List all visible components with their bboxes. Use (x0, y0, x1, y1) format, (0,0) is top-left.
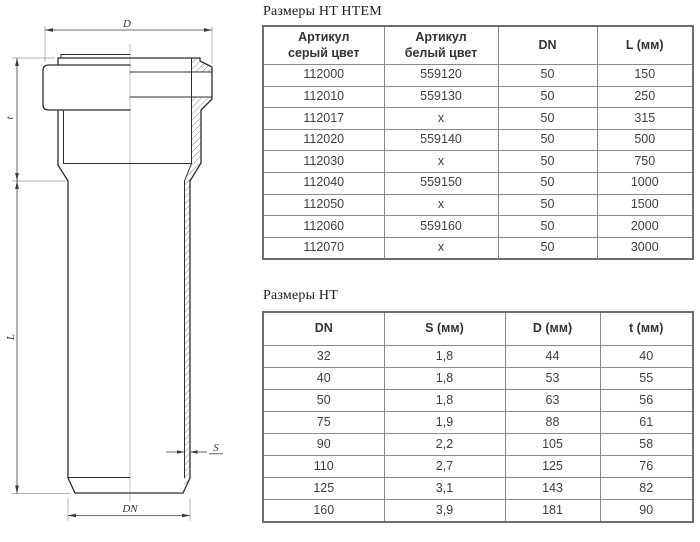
table-row: 11202055914050500 (263, 129, 693, 151)
table-cell: 1500 (597, 194, 693, 216)
table-cell: 181 (505, 500, 600, 523)
column-header: DN (498, 26, 597, 65)
table-cell: 88 (505, 412, 600, 434)
table-cell: 2000 (597, 216, 693, 238)
ht-table-title: Размеры HT (263, 288, 338, 304)
table-cell: 315 (597, 108, 693, 130)
table-row: 501,86356 (263, 390, 693, 412)
table-row: 112017x50315 (263, 108, 693, 130)
table-cell: 3,9 (384, 500, 505, 523)
column-header: Артикул белый цвет (384, 26, 498, 65)
table-cell: 160 (263, 500, 384, 523)
table-cell: 750 (597, 151, 693, 173)
table-cell: 559120 (384, 65, 498, 87)
dim-label-l: L (5, 334, 17, 341)
table-cell: 559160 (384, 216, 498, 238)
table-cell: 75 (263, 412, 384, 434)
table-cell: 1,8 (384, 346, 505, 368)
table-row: 321,84440 (263, 346, 693, 368)
table-cell: 1,8 (384, 368, 505, 390)
table-cell: 2,2 (384, 434, 505, 456)
table-cell: 125 (505, 456, 600, 478)
table-cell: 40 (600, 346, 693, 368)
table-row: 11200055912050150 (263, 65, 693, 87)
table-cell: 3000 (597, 237, 693, 259)
header-row: Артикул серый цветАртикул белый цветDNL … (263, 26, 693, 65)
table-cell: 2,7 (384, 456, 505, 478)
table-row: 1253,114382 (263, 478, 693, 500)
table-cell: 56 (600, 390, 693, 412)
extension-lines (12, 26, 212, 521)
table-cell: 76 (600, 456, 693, 478)
pipe-technical-drawing: D t L S DN (0, 0, 260, 542)
table-row: 112050x501500 (263, 194, 693, 216)
table-cell: 50 (498, 65, 597, 87)
table-cell: 3,1 (384, 478, 505, 500)
table-row: 112040559150501000 (263, 172, 693, 194)
ht-size-table: DNS (мм)D (мм)t (мм) 321,84440401,853555… (262, 311, 694, 523)
dim-label-s: S (213, 442, 219, 454)
table-cell: x (384, 108, 498, 130)
table-cell: x (384, 151, 498, 173)
table-cell: 1000 (597, 172, 693, 194)
table-cell: 50 (498, 237, 597, 259)
table-cell: 58 (600, 434, 693, 456)
column-header: t (мм) (600, 312, 693, 346)
column-header: S (мм) (384, 312, 505, 346)
htem-table-header: Артикул серый цветАртикул белый цветDNL … (263, 26, 693, 65)
table-row: 112060559160502000 (263, 216, 693, 238)
column-header: L (мм) (597, 26, 693, 65)
table-cell: 50 (498, 194, 597, 216)
table-cell: 50 (498, 172, 597, 194)
table-cell: 143 (505, 478, 600, 500)
table-row: 1102,712576 (263, 456, 693, 478)
table-cell: 125 (263, 478, 384, 500)
table-cell: 559130 (384, 86, 498, 108)
table-cell: 112017 (263, 108, 384, 130)
table-cell: 250 (597, 86, 693, 108)
table-cell: 53 (505, 368, 600, 390)
table-cell: 112060 (263, 216, 384, 238)
table-row: 11201055913050250 (263, 86, 693, 108)
catalog-page: D t L S DN Размеры HT HTEM Артикул серый… (0, 0, 700, 542)
htem-table-title: Размеры HT HTEM (263, 4, 382, 20)
table-cell: 50 (498, 108, 597, 130)
table-cell: 50 (498, 129, 597, 151)
table-row: 112030x50750 (263, 151, 693, 173)
table-cell: 32 (263, 346, 384, 368)
table-cell: 40 (263, 368, 384, 390)
header-row: DNS (мм)D (мм)t (мм) (263, 312, 693, 346)
dim-label-dn: DN (121, 503, 138, 515)
table-cell: 44 (505, 346, 600, 368)
table-cell: 55 (600, 368, 693, 390)
ht-table-body: 321,84440401,85355501,86356751,98861902,… (263, 346, 693, 523)
table-cell: x (384, 194, 498, 216)
table-cell: x (384, 237, 498, 259)
table-cell: 112030 (263, 151, 384, 173)
table-cell: 82 (600, 478, 693, 500)
htem-table-body: 1120005591205015011201055913050250112017… (263, 65, 693, 260)
table-cell: 112070 (263, 237, 384, 259)
table-cell: 559140 (384, 129, 498, 151)
table-cell: 90 (263, 434, 384, 456)
table-cell: 112040 (263, 172, 384, 194)
table-row: 751,98861 (263, 412, 693, 434)
table-row: 1603,918190 (263, 500, 693, 523)
table-cell: 90 (600, 500, 693, 523)
table-row: 112070x503000 (263, 237, 693, 259)
table-cell: 150 (597, 65, 693, 87)
table-cell: 50 (498, 86, 597, 108)
table-cell: 500 (597, 129, 693, 151)
column-header: DN (263, 312, 384, 346)
section-hatch (183, 58, 212, 493)
table-cell: 1,9 (384, 412, 505, 434)
table-cell: 1,8 (384, 390, 505, 412)
table-cell: 63 (505, 390, 600, 412)
table-cell: 50 (498, 216, 597, 238)
table-row: 902,210558 (263, 434, 693, 456)
table-cell: 112010 (263, 86, 384, 108)
ht-table-header: DNS (мм)D (мм)t (мм) (263, 312, 693, 346)
table-cell: 112000 (263, 65, 384, 87)
table-cell: 61 (600, 412, 693, 434)
table-cell: 559150 (384, 172, 498, 194)
table-cell: 50 (263, 390, 384, 412)
table-cell: 112020 (263, 129, 384, 151)
column-header: Артикул серый цвет (263, 26, 384, 65)
dim-label-t: t (5, 116, 16, 119)
table-cell: 105 (505, 434, 600, 456)
htem-size-table: Артикул серый цветАртикул белый цветDNL … (262, 25, 694, 260)
table-cell: 112050 (263, 194, 384, 216)
table-row: 401,85355 (263, 368, 693, 390)
dim-label-d: D (122, 18, 131, 30)
table-cell: 110 (263, 456, 384, 478)
table-cell: 50 (498, 151, 597, 173)
column-header: D (мм) (505, 312, 600, 346)
